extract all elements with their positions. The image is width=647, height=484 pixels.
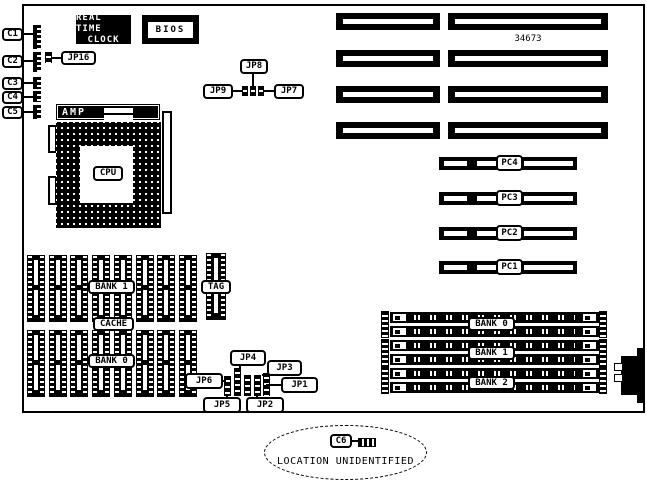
simm-rail: [381, 366, 389, 394]
simm-rail: [599, 366, 607, 394]
bios-chip: BIOS: [142, 15, 199, 44]
pointer-line: [22, 60, 33, 62]
simm-bank0-label: BANK 0: [468, 317, 515, 331]
simm-rail: [599, 311, 607, 338]
connector-label-c5: C5: [2, 106, 23, 119]
pointer-line: [266, 384, 282, 386]
keyboard-connector-tab: [637, 348, 645, 358]
cache-chip: [49, 255, 67, 322]
simm-end-bracket: [392, 355, 407, 364]
simm-end-bracket: [582, 383, 597, 392]
simm-end-bracket: [392, 327, 407, 336]
cache-chip: [157, 330, 175, 397]
jumper-label-jp3: JP3: [267, 360, 302, 376]
isa-slot: [448, 86, 608, 103]
pointer-line: [22, 82, 33, 84]
cache-chip: [27, 330, 45, 397]
pointer-line: [22, 111, 33, 113]
isa-slot: [336, 122, 440, 139]
jumper-label-jp9: JP9: [203, 84, 233, 99]
cache-chip: [136, 330, 154, 397]
simm-end-bracket: [392, 341, 407, 350]
amp-window: [104, 108, 133, 113]
simm-end-bracket: [582, 355, 597, 364]
pc-slot-label: PC2: [496, 225, 523, 241]
simm-end-bracket: [582, 369, 597, 378]
jumper-block: [234, 368, 241, 396]
c6-connector-glyph: [358, 438, 376, 447]
isa-slot: [336, 13, 440, 30]
pc-slot-label: PC1: [496, 259, 523, 275]
simm-rail: [381, 311, 389, 338]
cache-chip: [49, 330, 67, 397]
jumper-jp16: [45, 52, 52, 63]
rtc-label-line2: CLOCK: [87, 35, 119, 46]
motherboard-diagram: C1 C2 C3 C4 C5 JP16 REAL TIME CLOCK BIOS…: [0, 0, 647, 484]
simm-rail: [381, 339, 389, 366]
edge-connector-c5: [33, 105, 41, 119]
cache-bank0-label: BANK 0: [88, 354, 135, 368]
cache-label: CACHE: [93, 317, 134, 331]
isa-slot: [336, 86, 440, 103]
edge-connector-c1: [33, 25, 41, 49]
board-part-number: 34673: [448, 34, 608, 44]
simm-rail: [599, 339, 607, 366]
edge-connector-c3: [33, 77, 41, 89]
cache-chip: [70, 330, 88, 397]
amp-socket-bar: AMP: [56, 104, 160, 120]
edge-connector-c4: [33, 91, 41, 102]
rtc-chip: REAL TIME CLOCK: [76, 15, 131, 44]
cache-bank1-label: BANK 1: [88, 280, 135, 294]
jumper-block: [242, 86, 248, 96]
cache-chip: [27, 255, 45, 322]
jumper-label-jp4: JP4: [230, 350, 266, 366]
simm-end-bracket: [582, 313, 597, 322]
simm-end-bracket: [582, 341, 597, 350]
keyboard-connector-tab: [637, 393, 645, 403]
jumper-block: [244, 375, 251, 396]
tag-label: TAG: [201, 280, 231, 294]
simm-bank2-label: BANK 2: [468, 376, 515, 390]
cache-chip: [70, 255, 88, 322]
jumper-label-jp1: JP1: [281, 377, 318, 393]
simm-end-bracket: [392, 313, 407, 322]
pc-slot-1: PC1: [439, 261, 577, 274]
pointer-line: [264, 90, 274, 92]
connector-label-c4: C4: [2, 91, 23, 104]
pc-slot-2: PC2: [439, 227, 577, 240]
bios-label: BIOS: [148, 22, 194, 38]
keyboard-connector-pin: [614, 374, 623, 382]
rtc-label-line1: REAL TIME: [76, 13, 131, 35]
cache-chip: [136, 255, 154, 322]
jumper-block: [254, 375, 261, 396]
jumper-label-jp8: JP8: [240, 59, 268, 74]
jumper-block: [250, 86, 256, 96]
pc-slot-label: PC3: [496, 190, 523, 206]
pc-slot-4: PC4: [439, 157, 577, 170]
simm-bank1-label: BANK 1: [468, 346, 515, 360]
cache-chip: [179, 255, 197, 322]
amp-label: AMP: [57, 107, 86, 118]
simm-end-bracket: [582, 327, 597, 336]
connector-label-c6: C6: [330, 434, 352, 448]
pointer-line: [252, 74, 254, 86]
pointer-line: [233, 90, 242, 92]
simm-end-bracket: [392, 369, 407, 378]
isa-slot: [336, 50, 440, 67]
keyboard-connector-pin: [614, 363, 623, 371]
jumper-label-jp5: JP5: [203, 397, 241, 413]
connector-label-c2: C2: [2, 55, 23, 68]
pointer-line: [22, 33, 33, 35]
pc-slot-3: PC3: [439, 192, 577, 205]
callout-text: LOCATION UNIDENTIFIED: [265, 456, 426, 467]
jumper-label-jp6: JP6: [185, 373, 223, 389]
connector-label-c3: C3: [2, 77, 23, 90]
simm-end-bracket: [392, 383, 407, 392]
jumper-label-jp7: JP7: [274, 84, 304, 99]
isa-slot: [448, 122, 608, 139]
socket-side-bar: [162, 111, 172, 214]
pointer-line: [22, 96, 33, 98]
jumper-label-jp2: JP2: [246, 397, 284, 413]
isa-slot: [448, 13, 608, 30]
cache-chip: [157, 255, 175, 322]
edge-connector-c2: [33, 52, 41, 72]
jumper-label-jp16: JP16: [61, 51, 96, 65]
jumper-block: [224, 376, 231, 396]
connector-label-c1: C1: [2, 28, 23, 41]
keyboard-connector: [621, 356, 643, 395]
pc-slot-label: PC4: [496, 155, 523, 171]
isa-slot: [448, 50, 608, 67]
cpu-label: CPU: [93, 166, 123, 181]
